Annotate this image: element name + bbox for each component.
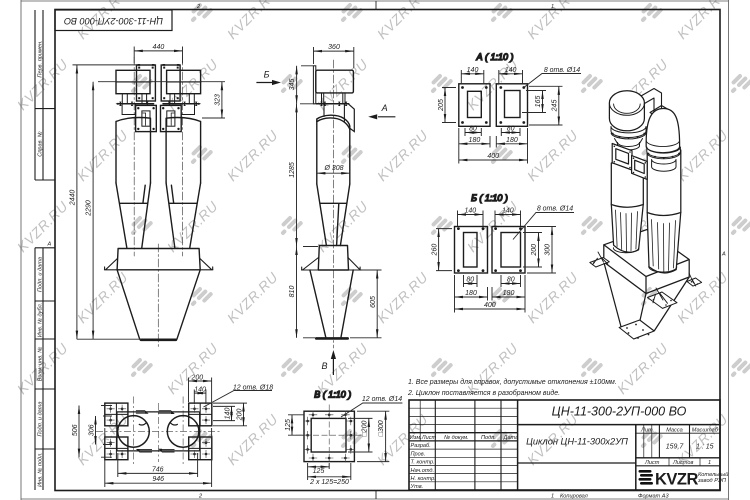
svg-text:165: 165 (535, 96, 542, 108)
svg-text:Нач.отд.: Нач.отд. (411, 468, 435, 474)
svg-text:12 отв. Ø18: 12 отв. Ø18 (233, 384, 273, 391)
svg-text:8 отв. Ø14: 8 отв. Ø14 (544, 67, 580, 74)
svg-text:Взам. инв. №: Взам. инв. № (38, 347, 44, 382)
svg-text:Масштаб: Масштаб (692, 427, 719, 433)
svg-text:205: 205 (438, 99, 445, 112)
svg-text:Т. контр.: Т. контр. (411, 460, 435, 466)
svg-text:№ докум.: № докум. (444, 435, 469, 441)
svg-text:Инв. № подл.: Инв. № подл. (38, 452, 44, 487)
svg-text:506: 506 (72, 424, 79, 436)
svg-text:2 х 125=250: 2 х 125=250 (309, 479, 349, 486)
svg-text:Подп.: Подп. (481, 435, 496, 441)
svg-text:Дата: Дата (503, 435, 519, 441)
svg-text:Лист: Лист (421, 435, 437, 441)
svg-text:завод РЭП: завод РЭП (697, 478, 727, 484)
svg-text:260: 260 (431, 244, 438, 257)
svg-text:140: 140 (505, 67, 517, 74)
svg-text:605: 605 (370, 296, 377, 308)
svg-text:Изм.: Изм. (410, 435, 422, 441)
svg-text:400: 400 (484, 302, 496, 309)
svg-text:Лит.: Лит. (640, 427, 654, 433)
svg-text:80: 80 (469, 126, 477, 133)
svg-text:А: А (381, 103, 388, 113)
svg-text:1 : 15: 1 : 15 (696, 444, 714, 451)
svg-text:140: 140 (224, 408, 231, 420)
svg-text:80: 80 (507, 277, 515, 284)
svg-text:Разраб.: Разраб. (411, 443, 431, 449)
svg-text:□200: □200 (361, 421, 368, 437)
svg-text:80: 80 (466, 277, 474, 284)
svg-text:Инв. № дубл.: Инв. № дубл. (38, 303, 44, 337)
svg-text:125: 125 (313, 468, 325, 475)
svg-text:80: 80 (507, 126, 515, 133)
svg-text:140: 140 (194, 386, 206, 393)
svg-text:Формат А3: Формат А3 (638, 494, 669, 500)
svg-text:1: 1 (551, 494, 554, 500)
svg-text:В ( 1:10 ): В ( 1:10 ) (314, 390, 351, 400)
svg-text:ЦН-11-300-2УП-000 ВО: ЦН-11-300-2УП-000 ВО (552, 405, 687, 419)
svg-text:Б: Б (264, 70, 270, 80)
svg-text:Лист: Лист (644, 460, 660, 466)
svg-text:1285: 1285 (289, 162, 296, 178)
svg-text:746: 746 (152, 466, 164, 473)
svg-text:300: 300 (545, 244, 552, 256)
svg-text:440: 440 (153, 44, 165, 51)
svg-text:200: 200 (190, 374, 203, 381)
svg-text:2440: 2440 (69, 190, 76, 207)
svg-text:2. Циклон поставляется в разоб: 2. Циклон поставляется в разобранном вид… (407, 389, 560, 397)
svg-text:180: 180 (469, 137, 481, 144)
svg-text:245: 245 (551, 100, 558, 113)
svg-text:12 отв. Ø14: 12 отв. Ø14 (362, 396, 402, 403)
svg-text:В: В (321, 361, 327, 371)
svg-text:□300: □300 (378, 420, 385, 436)
svg-text:8 отв. Ø14: 8 отв. Ø14 (537, 206, 573, 213)
svg-text:323: 323 (214, 94, 221, 106)
svg-text:Б ( 1:10 ): Б ( 1:10 ) (471, 193, 508, 203)
svg-text:Ø 308: Ø 308 (323, 165, 343, 172)
svg-text:140: 140 (502, 208, 514, 215)
svg-text:Подп. и дата: Подп. и дата (38, 401, 44, 436)
svg-text:А: А (47, 242, 52, 248)
svg-text:200: 200 (531, 244, 538, 257)
svg-text:Подп. и дата: Подп. и дата (38, 257, 44, 292)
svg-text:ЦН-11-300-2УП-000 ВО: ЦН-11-300-2УП-000 ВО (64, 16, 163, 26)
svg-text:345: 345 (289, 79, 296, 91)
svg-text:2290: 2290 (86, 200, 93, 217)
svg-text:Утв.: Утв. (410, 484, 424, 490)
svg-text:Пров.: Пров. (411, 451, 426, 457)
svg-text:180: 180 (506, 137, 518, 144)
svg-text:180: 180 (503, 290, 515, 297)
svg-text:Котельный: Котельный (698, 471, 728, 478)
svg-text:Перв. примен.: Перв. примен. (38, 40, 44, 77)
svg-text:180: 180 (465, 290, 477, 297)
svg-text:А: А (721, 252, 726, 258)
svg-text:125: 125 (285, 419, 292, 431)
svg-text:140: 140 (464, 208, 476, 215)
svg-text:Копировал: Копировал (560, 494, 589, 500)
svg-text:Масса: Масса (666, 427, 683, 433)
svg-text:Циклон ЦН-11-300х2УП: Циклон ЦН-11-300х2УП (526, 436, 628, 446)
svg-text:А ( 1:10 ): А ( 1:10 ) (475, 52, 513, 62)
svg-text:Н. контр.: Н. контр. (411, 476, 436, 482)
svg-text:1. Все размеры для справок, до: 1. Все размеры для справок, допустимые о… (408, 378, 617, 386)
svg-text:810: 810 (289, 286, 296, 298)
svg-text:306: 306 (88, 424, 95, 436)
svg-text:946: 946 (152, 476, 164, 483)
svg-text:140: 140 (467, 67, 479, 74)
svg-text:200: 200 (236, 408, 243, 421)
svg-text:360: 360 (328, 44, 340, 51)
svg-text:1: 1 (708, 460, 711, 466)
svg-text:KVZR: KVZR (655, 471, 699, 489)
svg-text:400: 400 (487, 153, 499, 160)
svg-text:Справ. №: Справ. № (38, 131, 44, 156)
svg-text:159,7: 159,7 (666, 444, 685, 451)
svg-text:Листов: Листов (672, 460, 693, 466)
